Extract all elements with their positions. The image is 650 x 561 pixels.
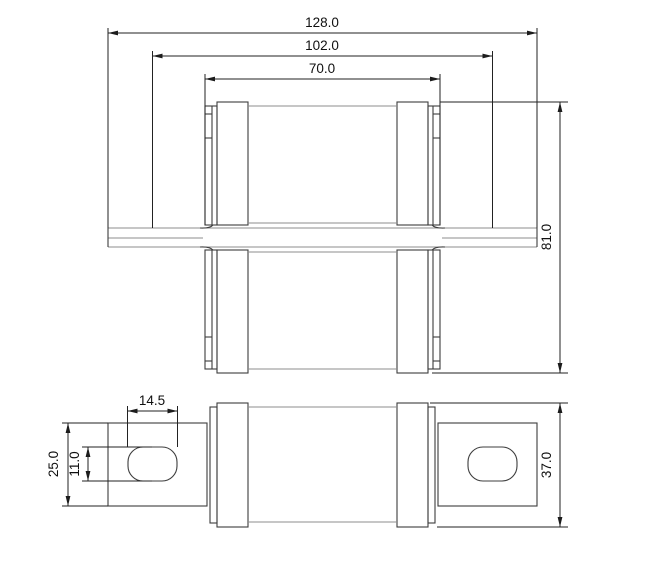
- left-slotted-hole: [128, 447, 177, 481]
- center-blade-strip: [108, 225, 537, 250]
- dimension-label-overall-width: 128.0: [305, 15, 339, 30]
- right-slotted-hole: [468, 447, 517, 481]
- dim-slot-length: 14.5: [128, 393, 178, 447]
- dimension-label-slot-width: 11.0: [67, 451, 82, 476]
- dim-slot-width: 11.0: [67, 447, 152, 481]
- left-blade-terminal: [108, 423, 207, 506]
- dimensions: 128.0 102.0 70.0 81.0 14.5: [46, 15, 568, 527]
- upper-right-end-cap: [397, 102, 428, 225]
- lower-left-stub: [205, 250, 217, 369]
- dim-body-width: 70.0: [205, 61, 440, 225]
- drawing-canvas: 128.0 102.0 70.0 81.0 14.5: [0, 0, 650, 561]
- side-left-stub: [210, 407, 217, 523]
- dimension-label-cap-diameter: 37.0: [539, 452, 554, 478]
- plan-upper-section: [205, 102, 440, 225]
- fuse-technical-drawing: 128.0 102.0 70.0 81.0 14.5: [0, 0, 650, 561]
- dimension-label-terminal-width: 25.0: [46, 451, 61, 477]
- dimension-label-hole-spacing: 102.0: [305, 38, 339, 53]
- side-right-stub: [428, 407, 435, 523]
- upper-body: [248, 106, 397, 223]
- dimension-label-overall-height: 81.0: [539, 224, 554, 250]
- side-left-end-cap-band: [397, 403, 428, 527]
- side-view: [108, 403, 537, 527]
- plan-lower-section: [205, 250, 440, 373]
- upper-left-stub: [205, 106, 217, 225]
- dimension-label-body-width: 70.0: [309, 61, 335, 76]
- right-blade-terminal: [438, 423, 537, 506]
- side-left-end-cap: [217, 403, 248, 527]
- plan-view: [108, 102, 537, 373]
- upper-left-end-cap: [217, 102, 248, 225]
- dim-cap-diameter: 37.0: [430, 403, 568, 527]
- lower-right-stub: [428, 250, 440, 369]
- lower-right-end-cap: [397, 250, 428, 373]
- upper-right-stub: [428, 106, 440, 225]
- lower-body: [248, 252, 397, 369]
- lower-left-end-cap: [217, 250, 248, 373]
- dimension-label-slot-length: 14.5: [139, 393, 165, 408]
